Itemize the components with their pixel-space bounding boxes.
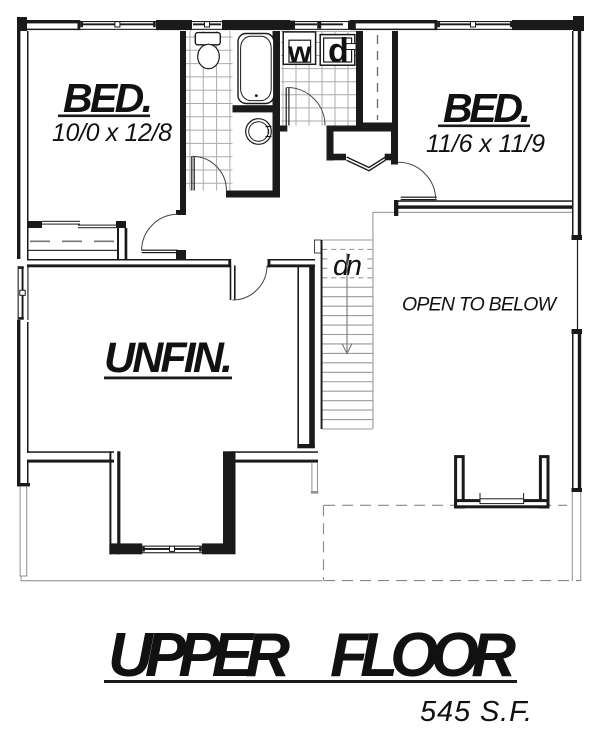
svg-text:UNFIN.: UNFIN. (104, 334, 233, 382)
svg-text:OPEN TO BELOW: OPEN TO BELOW (402, 294, 558, 316)
svg-text:FLOOR: FLOOR (330, 621, 516, 690)
svg-text:UPPER: UPPER (108, 621, 290, 690)
svg-text:BED.: BED. (63, 75, 153, 121)
svg-text:545 S.F.: 545 S.F. (420, 696, 532, 728)
svg-text:BED.: BED. (443, 85, 531, 131)
svg-text:d: d (328, 32, 349, 70)
svg-text:11/6 x 11/9: 11/6 x 11/9 (426, 130, 545, 158)
svg-text:w: w (287, 36, 312, 69)
svg-text:10/0 x 12/8: 10/0 x 12/8 (52, 119, 172, 147)
